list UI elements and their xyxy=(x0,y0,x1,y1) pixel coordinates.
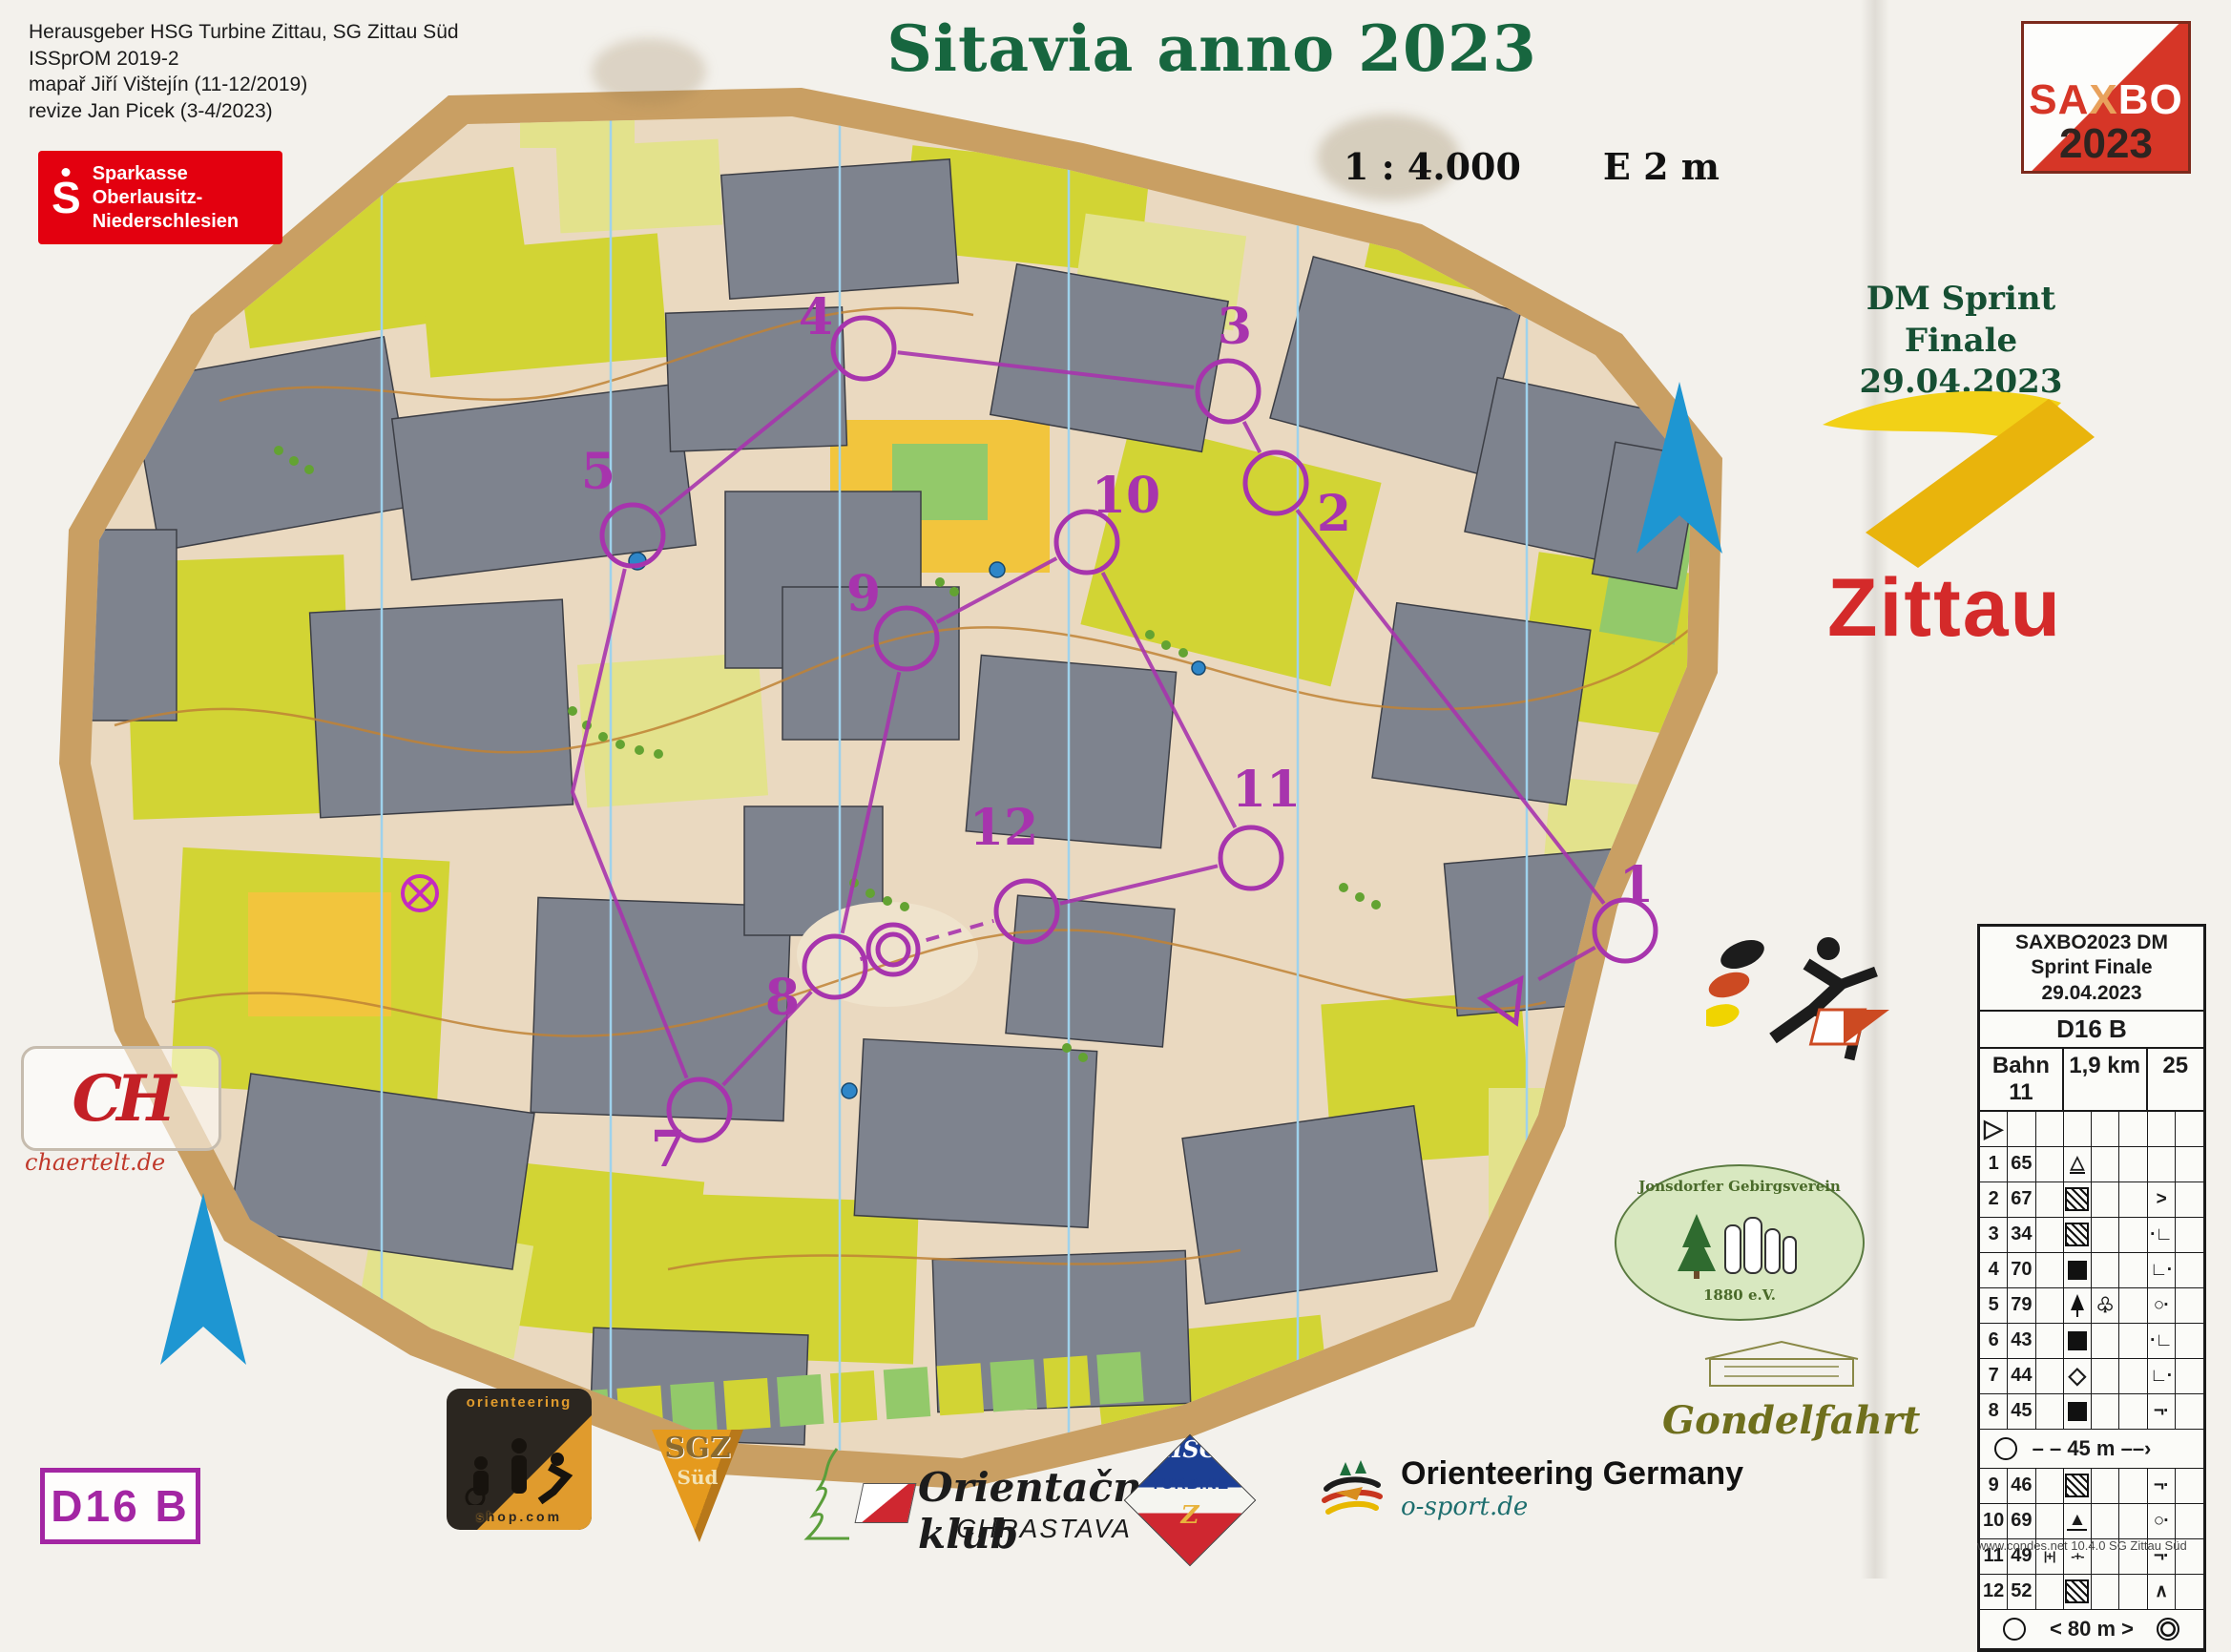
sheet-cell-G xyxy=(2148,1147,2176,1182)
o-sport-url: o-sport.de xyxy=(1401,1493,1743,1521)
corner-a-symbol: ∟· xyxy=(2150,1366,2172,1387)
sheet-cell-D: ▲ xyxy=(2064,1504,2092,1539)
orienteering-runner-icon xyxy=(1706,928,1907,1080)
saxbo-part2: X xyxy=(2089,76,2117,123)
sparkasse-s-icon: S xyxy=(52,172,81,223)
distance-label: < 80 m > xyxy=(2050,1617,2134,1642)
sheet-cell-F xyxy=(2119,1469,2147,1504)
sheet-cell-F xyxy=(2119,1359,2147,1394)
sheet-cell-G: ¬· xyxy=(2148,1394,2176,1430)
sheet-cell-G: ·∟ xyxy=(2148,1218,2176,1253)
sheet-cell-C xyxy=(2036,1504,2064,1539)
market-square xyxy=(797,902,978,1007)
sheet-cell-E xyxy=(2092,1469,2119,1504)
control-number-9: 9 xyxy=(846,565,881,623)
sheet-cell-A: 12 xyxy=(1980,1575,2008,1610)
paved-symbol xyxy=(2065,1474,2089,1497)
control-row: 643·∟ xyxy=(1980,1324,2203,1359)
gondelfahrt-building-sketch xyxy=(1672,1338,1891,1393)
sheet-cell-A: ▷ xyxy=(1980,1112,2008,1147)
control-row: 845¬· xyxy=(1980,1394,2203,1430)
turbine-text: TURBINE xyxy=(1151,1474,1230,1494)
paved-symbol xyxy=(2065,1187,2089,1211)
building-symbol xyxy=(2068,1331,2087,1350)
taped-row: – – 45 m ––› xyxy=(1980,1430,2203,1469)
orienteering-shop-bottom-text: shop.com xyxy=(447,1509,592,1524)
corner-c-symbol: ¬· xyxy=(2154,1475,2168,1496)
orienteering-germany-logo: Orienteering Germany o-sport.de xyxy=(1319,1454,1743,1521)
sheet-cell-H xyxy=(2176,1253,2203,1288)
chaertelt-logo: CH xyxy=(21,1046,221,1151)
sheet-cell-B: 46 xyxy=(2008,1469,2035,1504)
chaertelt-letters: CH xyxy=(73,1061,171,1136)
gebirgsverein-trees-rocks-icon xyxy=(1673,1204,1806,1281)
control-row: 1252∧ xyxy=(1980,1575,2203,1610)
sheet-grid: ▷165△267>334·∟470∟·579♧○·643·∟744◇∟·845¬… xyxy=(1980,1112,2203,1649)
sheet-cell-B: 69 xyxy=(2008,1504,2035,1539)
orienteering-shop-logo: orienteering shop.com xyxy=(447,1389,592,1530)
orienteering-shop-top-text: orienteering xyxy=(447,1394,592,1411)
sheet-cell-B: 67 xyxy=(2008,1182,2035,1218)
sparkasse-name: Sparkasse xyxy=(93,163,188,184)
chrastava-sub-text: CHRASTAVA xyxy=(956,1514,1132,1544)
control-row: 267> xyxy=(1980,1182,2203,1218)
sheet-title-line: Sprint Finale xyxy=(1980,955,2203,980)
scanned-orienteering-map-page: { "publisher": { "lines": [ "Herausgeber… xyxy=(0,0,2231,1579)
sheet-cell-G: ○· xyxy=(2148,1504,2176,1539)
sheet-cell-F xyxy=(2119,1218,2147,1253)
sheet-cell-C xyxy=(2036,1182,2064,1218)
corner-a-symbol: ∟· xyxy=(2150,1260,2172,1281)
sheet-cell-E xyxy=(2092,1359,2119,1394)
sheet-cell-B: 34 xyxy=(2008,1218,2035,1253)
bush-symbol: ♧ xyxy=(2095,1293,2115,1318)
control-row: 165△ xyxy=(1980,1147,2203,1182)
sheet-title-line: SAXBO2023 DM xyxy=(1980,931,2203,955)
publisher-line: ISSprOM 2019-2 xyxy=(29,46,459,73)
sheet-cell-D xyxy=(2064,1182,2092,1218)
sheet-cell-H xyxy=(2176,1394,2203,1430)
sheet-cell-G: ·∟ xyxy=(2148,1324,2176,1359)
start-symbol: ▷ xyxy=(1984,1114,2003,1143)
sparkasse-region: Oberlausitz-Niederschlesien xyxy=(93,187,239,232)
sheet-cell-A: 8 xyxy=(1980,1394,2008,1430)
sheet-cell-E xyxy=(2092,1218,2119,1253)
start-row: ▷ xyxy=(1980,1112,2203,1147)
sheet-cell-C xyxy=(2036,1253,2064,1288)
sheet-cell-D: ◇ xyxy=(2064,1359,2092,1394)
sheet-cell-D xyxy=(2064,1575,2092,1610)
saxbo-logo: SAXBO 2023 xyxy=(2021,21,2191,174)
hsg-z-text: Z xyxy=(1181,1501,1199,1530)
sheet-cell-B: 45 xyxy=(2008,1394,2035,1430)
publisher-line: revize Jan Picek (3-4/2023) xyxy=(29,98,459,125)
building-symbol xyxy=(2068,1402,2087,1421)
chrastava-club-logo: Orientační klub CHRASTAVA xyxy=(803,1443,1109,1558)
corner-b-symbol: ·∟ xyxy=(2150,1224,2172,1245)
distance-label: – – 45 m ––› xyxy=(2033,1436,2152,1461)
sheet-cell-A: 1 xyxy=(1980,1147,2008,1182)
gebirgsverein-logo: Jonsdorfer Gebirgsverein 1880 e.V. xyxy=(1615,1164,1865,1321)
north-arrow-icon xyxy=(1637,382,1722,554)
sheet-cell-A: 10 xyxy=(1980,1504,2008,1539)
sheet-cell-F xyxy=(2119,1182,2147,1218)
sheet-cell-B: 44 xyxy=(2008,1359,2035,1394)
control-number-8: 8 xyxy=(765,969,800,1027)
sheet-cell-G: > xyxy=(2148,1182,2176,1218)
chaertelt-url: chaertelt.de xyxy=(25,1149,165,1176)
sheet-cell-E xyxy=(2092,1504,2119,1539)
sheet-cell-D xyxy=(2064,1469,2092,1504)
sheet-cell-H xyxy=(2176,1469,2203,1504)
sheet-cell-F xyxy=(2119,1288,2147,1324)
sheet-cell-B xyxy=(2008,1112,2035,1147)
orienteering-germany-emblem-icon xyxy=(1319,1454,1386,1521)
event-line: DM Sprint xyxy=(1837,279,2085,321)
sheet-cell-E xyxy=(2092,1324,2119,1359)
sheet-cell-C xyxy=(2036,1112,2064,1147)
saxbo-year: 2023 xyxy=(2059,121,2153,167)
sheet-cell-E xyxy=(2092,1147,2119,1182)
sheet-cell-E xyxy=(2092,1575,2119,1610)
sheet-title: SAXBO2023 DM Sprint Finale 29.04.2023 xyxy=(1980,927,2203,1012)
sheet-cell-G: ∟· xyxy=(2148,1359,2176,1394)
course-name: Bahn 11 xyxy=(1980,1049,2064,1110)
east-side-symbol: > xyxy=(2157,1189,2166,1210)
sheet-cell-B: 65 xyxy=(2008,1147,2035,1182)
sheet-cell-B: 70 xyxy=(2008,1253,2035,1288)
sheet-cell-C xyxy=(2036,1359,2064,1394)
sheet-cell-B: 52 xyxy=(2008,1575,2035,1610)
sheet-cell-C xyxy=(2036,1288,2064,1324)
finish-row: < 80 m > xyxy=(1980,1610,2203,1649)
sheet-cell-A: 9 xyxy=(1980,1469,2008,1504)
sgz-sued-logo: SGZ Süd xyxy=(652,1430,743,1542)
sheet-cell-D: △ xyxy=(2064,1147,2092,1182)
sheet-cell-F xyxy=(2119,1112,2147,1147)
sheet-cell-C xyxy=(2036,1575,2064,1610)
control-number-10: 10 xyxy=(1092,467,1160,525)
sheet-cell-C xyxy=(2036,1394,2064,1430)
map-scale: 1 : 4.000 xyxy=(1344,145,1521,188)
publisher-line: Herausgeber HSG Turbine Zittau, SG Zitta… xyxy=(29,19,459,46)
sheet-cell-F xyxy=(2119,1147,2147,1182)
course-length: 1,9 km xyxy=(2064,1049,2148,1110)
foot-symbol: ○· xyxy=(2154,1511,2169,1532)
sheet-cell-H xyxy=(2176,1324,2203,1359)
sheet-cell-D xyxy=(2064,1394,2092,1430)
sheet-cell-G: ¬· xyxy=(2148,1469,2176,1504)
sheet-cell-H xyxy=(2176,1359,2203,1394)
between-symbol: ∧ xyxy=(2155,1580,2167,1602)
sheet-cell-G xyxy=(2148,1112,2176,1147)
athletes-silhouette-icon xyxy=(462,1434,576,1505)
control-row: 1069▲○· xyxy=(1980,1504,2203,1539)
gondelfahrt-text: Gondelfahrt xyxy=(1662,1398,1901,1443)
sheet-cell-D xyxy=(2064,1218,2092,1253)
sheet-cell-H xyxy=(2176,1218,2203,1253)
sheet-cell-E xyxy=(2092,1112,2119,1147)
control-flag-icon xyxy=(855,1483,917,1523)
building-symbol xyxy=(2068,1261,2087,1280)
control-number-12: 12 xyxy=(970,799,1038,857)
corner-b-symbol: ·∟ xyxy=(2150,1330,2172,1351)
sheet-cell-D xyxy=(2064,1324,2092,1359)
sheet-cell-E xyxy=(2092,1394,2119,1430)
sheet-cell-A: 7 xyxy=(1980,1359,2008,1394)
control-row: 334·∟ xyxy=(1980,1218,2203,1253)
ruin-symbol: ◇ xyxy=(2069,1362,2086,1390)
sheet-cell-C xyxy=(2036,1324,2064,1359)
sheet-cell-C xyxy=(2036,1218,2064,1253)
sheet-cell-D xyxy=(2064,1288,2092,1324)
sheet-cell-E xyxy=(2092,1182,2119,1218)
publisher-block: Herausgeber HSG Turbine Zittau, SG Zitta… xyxy=(29,19,459,125)
course-climb: 25 xyxy=(2148,1049,2204,1110)
zittau-swoosh-icon xyxy=(1808,372,2114,573)
tree-symbol xyxy=(2069,1294,2086,1317)
saxbo-part3: BO xyxy=(2118,76,2183,123)
zittau-logo-text: Zittau xyxy=(1827,561,2062,656)
orienteering-germany-title: Orienteering Germany xyxy=(1401,1455,1743,1493)
control-row: 744◇∟· xyxy=(1980,1359,2203,1394)
gebirgsverein-name: Jonsdorfer Gebirgsverein xyxy=(1615,1178,1865,1195)
sheet-cell-H xyxy=(2176,1112,2203,1147)
control-number-5: 5 xyxy=(581,443,615,501)
sheet-cell-H xyxy=(2176,1575,2203,1610)
sgz-sued-text: Süd xyxy=(652,1466,743,1489)
sheet-cell-C xyxy=(2036,1147,2064,1182)
sheet-cell-H xyxy=(2176,1504,2203,1539)
control-number-7: 7 xyxy=(651,1120,685,1179)
event-line: Finale xyxy=(1837,321,2085,363)
sheet-course-row: Bahn 11 1,9 km 25 xyxy=(1980,1049,2203,1112)
saxbo-part1: SA xyxy=(2029,76,2089,123)
sheet-cell-G: ∧ xyxy=(2148,1575,2176,1610)
sheet-cell-B: 43 xyxy=(2008,1324,2035,1359)
sheet-cell-H xyxy=(2176,1147,2203,1182)
sheet-cell-F xyxy=(2119,1504,2147,1539)
map-title: Sitavia anno 2023 xyxy=(840,11,1584,86)
sheet-cell-F xyxy=(2119,1394,2147,1430)
condes-footer: www.condes.net 10.4.0 SG Zittau Süd xyxy=(1977,1538,2187,1553)
sheet-cell-G: ∟· xyxy=(2148,1253,2176,1288)
control-number-3: 3 xyxy=(1218,298,1252,356)
sheet-cell-A: 4 xyxy=(1980,1253,2008,1288)
sheet-cell-F xyxy=(2119,1324,2147,1359)
sheet-cell-A: 5 xyxy=(1980,1288,2008,1324)
paved-symbol xyxy=(2065,1579,2089,1603)
paved-symbol xyxy=(2065,1223,2089,1246)
sheet-cell-G: ○· xyxy=(2148,1288,2176,1324)
control-number-1: 1 xyxy=(1619,856,1654,914)
sheet-class: D16 B xyxy=(1980,1012,2203,1049)
control-row: 470∟· xyxy=(1980,1253,2203,1288)
control-number-11: 11 xyxy=(1232,761,1301,819)
sheet-cell-F xyxy=(2119,1253,2147,1288)
sheet-cell-F xyxy=(2119,1575,2147,1610)
gondelfahrt-logo: Gondelfahrt xyxy=(1662,1338,1901,1443)
knoll-symbol: ▲ xyxy=(2067,1511,2087,1531)
knoll-open-symbol: △ xyxy=(2070,1154,2086,1174)
scale-row: 1 : 4.000E 2 m xyxy=(1344,145,1720,188)
sheet-cell-A: 6 xyxy=(1980,1324,2008,1359)
sheet-cell-D xyxy=(2064,1112,2092,1147)
sheet-cell-D xyxy=(2064,1253,2092,1288)
equidistance: E 2 m xyxy=(1603,145,1720,188)
sheet-cell-E: ♧ xyxy=(2092,1288,2119,1324)
sheet-title-line: 29.04.2023 xyxy=(1980,981,2203,1006)
sheet-cell-C xyxy=(2036,1469,2064,1504)
control-number-2: 2 xyxy=(1317,485,1351,543)
control-number-4: 4 xyxy=(799,288,833,346)
sgz-letters: SGZ xyxy=(652,1432,743,1465)
class-label-box: D16 B xyxy=(40,1468,200,1544)
sparkasse-logo: S Sparkasse Oberlausitz-Niederschlesien xyxy=(38,151,282,244)
sheet-cell-H xyxy=(2176,1182,2203,1218)
control-row: 946¬· xyxy=(1980,1469,2203,1504)
sheet-cell-E xyxy=(2092,1253,2119,1288)
north-arrow-icon xyxy=(160,1193,246,1365)
sheet-cell-B: 79 xyxy=(2008,1288,2035,1324)
control-row: 579♧○· xyxy=(1980,1288,2203,1324)
gebirgsverein-year: 1880 e.V. xyxy=(1615,1286,1865,1304)
foot-symbol: ○· xyxy=(2154,1295,2169,1316)
publisher-line: mapař Jiří Vištejín (11-12/2019) xyxy=(29,72,459,98)
sheet-cell-A: 2 xyxy=(1980,1182,2008,1218)
sheet-cell-A: 3 xyxy=(1980,1218,2008,1253)
corner-c-symbol: ¬· xyxy=(2154,1401,2168,1422)
sheet-cell-H xyxy=(2176,1288,2203,1324)
